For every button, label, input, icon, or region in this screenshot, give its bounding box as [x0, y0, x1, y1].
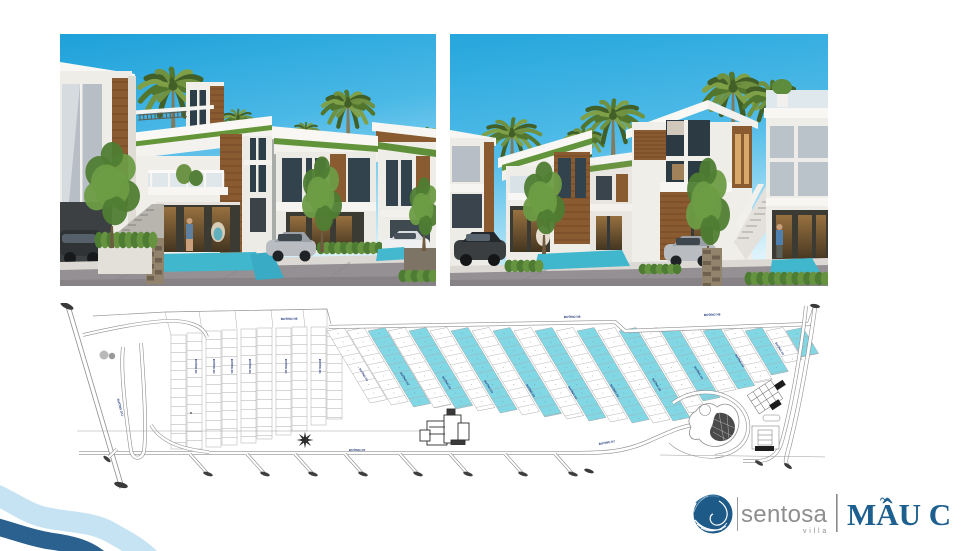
svg-text:ĐƯỜNG N8: ĐƯỜNG N8 — [704, 311, 721, 317]
svg-text:ĐƯỜNG D1: ĐƯỜNG D1 — [248, 359, 253, 374]
svg-text:villa: villa — [803, 528, 829, 535]
svg-text:ĐƯỜNG N7: ĐƯỜNG N7 — [349, 447, 366, 452]
svg-text:ĐƯỜNG D1: ĐƯỜNG D1 — [230, 359, 235, 374]
svg-text:MÂU C: MÂU C — [847, 497, 951, 532]
svg-text:ĐƯỜNG D1: ĐƯỜNG D1 — [284, 359, 289, 374]
svg-text:ĐƯỜNG N8: ĐƯỜNG N8 — [281, 316, 298, 321]
svg-text:~: ~ — [880, 492, 888, 508]
svg-text:ĐƯỜNG N8: ĐƯỜNG N8 — [564, 314, 581, 319]
svg-text:ĐƯỜNG D1: ĐƯỜNG D1 — [194, 359, 199, 374]
svg-text:ĐƯỜNG D1: ĐƯỜNG D1 — [318, 359, 323, 374]
svg-text:sentosa: sentosa — [741, 501, 828, 528]
svg-text:ĐƯỜNG N7: ĐƯỜNG N7 — [598, 438, 615, 446]
